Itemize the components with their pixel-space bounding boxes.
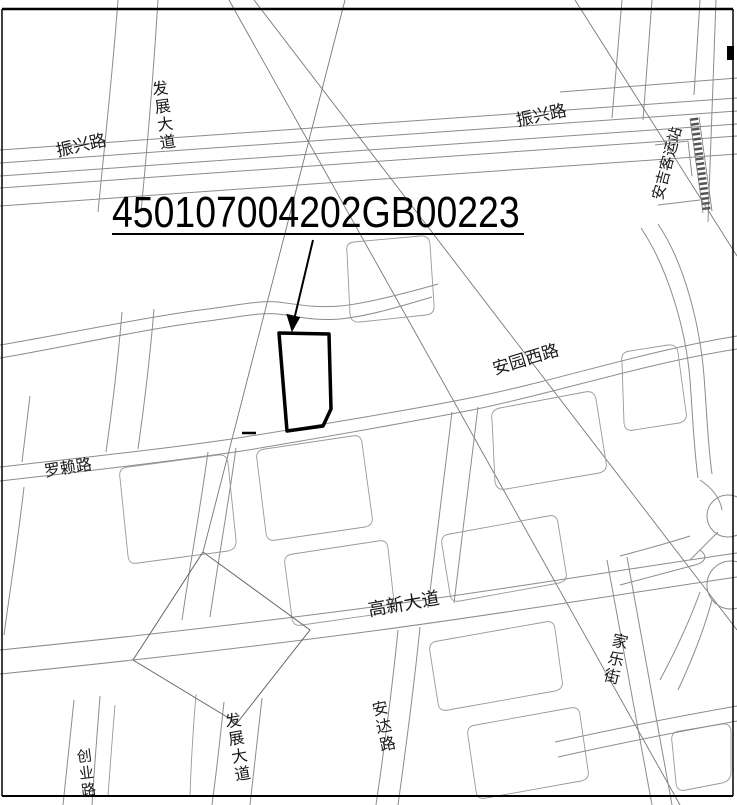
leader-arrow — [287, 240, 313, 331]
diamond-overlay — [133, 552, 310, 723]
road-corridor-zhenxing — [0, 78, 737, 206]
city-blocks — [108, 236, 731, 798]
parcel-id-underline — [112, 233, 524, 235]
map-linework — [0, 0, 737, 805]
interchange — [620, 224, 737, 690]
map-border — [2, 9, 734, 796]
target-parcel-outline — [279, 333, 331, 431]
road-corridor-anyuan — [0, 336, 737, 481]
parcel-id-label: 450107004202GB00223 — [112, 191, 520, 235]
map-viewport[interactable]: 450107004202GB00223 振兴路 发展大道 振兴路 安吉客运站 安… — [0, 0, 737, 805]
